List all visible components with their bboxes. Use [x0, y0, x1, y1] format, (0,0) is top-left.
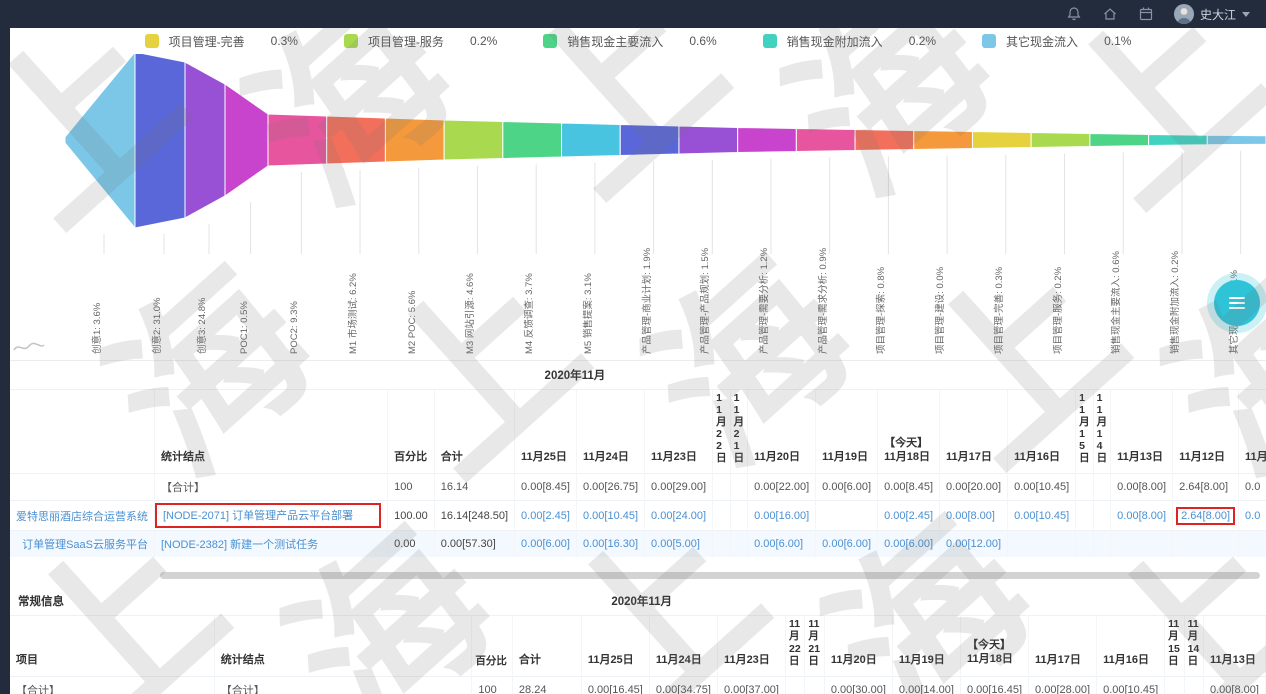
- avatar: [1174, 4, 1194, 24]
- date-col-header: 11月16日: [1097, 616, 1165, 676]
- menu-fab-button[interactable]: [1214, 280, 1260, 326]
- percent-col-header: 百分比: [472, 616, 513, 676]
- legend-label: 其它现金流入: [1006, 33, 1078, 50]
- table-row: 订单管理SaaS云服务平台[NODE-2382] 新建一个测试任务0.000.0…: [10, 531, 1266, 558]
- stage-label-18: 销售现金主要流入: 0.6%: [1111, 251, 1123, 354]
- node-cell: 【合计】: [214, 676, 472, 694]
- total-cell: 28.24: [512, 676, 581, 694]
- value-cell: 0.00[37.00]: [717, 676, 785, 694]
- funnel-stage-14: [855, 130, 914, 151]
- value-text: 0.00[28.00]: [1035, 684, 1090, 694]
- stage-label-0: 创意1: 3.6%: [92, 303, 104, 354]
- value-text: 0.00[37.00]: [724, 684, 779, 694]
- value-cell: [816, 501, 878, 531]
- wave-icon: [12, 340, 46, 354]
- value-text[interactable]: 0.00[6.00]: [754, 538, 803, 550]
- home-icon[interactable]: [1102, 6, 1118, 22]
- value-cell: 0.0: [1239, 474, 1266, 501]
- value-cell: [786, 676, 805, 694]
- date-col-header: 11月24日: [649, 616, 717, 676]
- value-cell: 0.00[20.00]: [940, 474, 1008, 501]
- funnel-stage-0: [65, 54, 135, 228]
- legend-item-0[interactable]: 项目管理-完善0.3%: [145, 33, 298, 50]
- value-cell: 0.00[6.00]: [816, 474, 878, 501]
- date-col-header: 11月17日: [940, 390, 1008, 474]
- value-text[interactable]: 0.00[2.45]: [884, 510, 933, 522]
- value-cell: 0.00[6.00]: [748, 531, 816, 558]
- project-cell: 订单管理SaaS云服务平台: [10, 531, 155, 558]
- funnel-stage-3: [225, 84, 268, 196]
- value-cell: 0.00[28.00]: [1029, 676, 1097, 694]
- value-text: 0.00[8.45]: [884, 481, 933, 493]
- value-text: 0.00[10.45]: [1103, 684, 1158, 694]
- value-text: 0.00[10.45]: [1014, 481, 1069, 493]
- percent-cell: 100: [388, 474, 435, 501]
- funnel-stage-15: [914, 131, 973, 150]
- stage-label-10: 产品管理-商业计划: 1.9%: [642, 248, 654, 354]
- stage-label-17: 项目管理-服务: 0.2%: [1053, 267, 1065, 354]
- value-cell: [713, 474, 731, 501]
- date-col-header: 11月20日: [824, 616, 892, 676]
- value-cell: [1111, 531, 1173, 558]
- legend-value: 0.2%: [909, 34, 936, 48]
- date-col-header: 11月16日: [1008, 390, 1076, 474]
- stage-label-2: 创意3: 24.8%: [197, 298, 209, 355]
- value-text[interactable]: 0.00[10.45]: [583, 510, 638, 522]
- stage-label-9: M5 销售提案: 3.1%: [583, 273, 595, 354]
- node-link[interactable]: [NODE-2071] 订单管理产品云平台部署: [163, 510, 353, 522]
- value-cell: [1076, 474, 1094, 501]
- date-col-header: 11月17日: [1029, 616, 1097, 676]
- tables-section: 2020年11月统计结点百分比合计11月25日11月24日11月23日11月22…: [10, 361, 1266, 694]
- main-content: 项目管理-完善0.3%项目管理-服务0.2%销售现金主要流入0.6%销售现金附加…: [10, 28, 1266, 694]
- table-row: 爱特思丽酒店综合运营系统[NODE-2071] 订单管理产品云平台部署100.0…: [10, 501, 1266, 531]
- value-cell: 0.00[26.75]: [576, 474, 644, 501]
- stage-label-15: 项目管理-建设: 0.0%: [935, 267, 947, 354]
- value-text[interactable]: 0.00[10.45]: [1014, 510, 1069, 522]
- date-col-header: 11月14日: [1184, 616, 1203, 676]
- funnel-stage-6: [385, 118, 444, 162]
- legend-item-3[interactable]: 销售现金附加流入0.2%: [763, 33, 936, 50]
- date-col-header: 11月13日: [1111, 390, 1173, 474]
- value-cell: 0.00[16.45]: [960, 676, 1028, 694]
- month-header: 2020年11月: [515, 361, 1266, 390]
- total-cell: 16.14[248.50]: [434, 501, 514, 531]
- value-text[interactable]: 0.00[8.00]: [1117, 510, 1166, 522]
- total-cell: 16.14: [434, 474, 514, 501]
- value-text: 0.00[8.00]: [1117, 481, 1166, 493]
- value-text[interactable]: 0.00[6.00]: [884, 538, 933, 550]
- legend-value: 0.6%: [689, 34, 716, 48]
- value-text: 0.0: [1245, 481, 1260, 493]
- value-text: 0.00[14.00]: [899, 684, 954, 694]
- date-col-header: 11月15日: [1076, 390, 1094, 474]
- funnel-stage-16: [972, 132, 1031, 149]
- value-cell: [1008, 531, 1076, 558]
- top-navbar: 史大江: [0, 0, 1266, 28]
- value-cell: [1076, 531, 1094, 558]
- legend-label: 项目管理-完善: [169, 33, 245, 50]
- funnel-stage-4: [268, 114, 327, 166]
- value-cell: 2.64[8.00]: [1173, 474, 1239, 501]
- value-cell: [713, 501, 731, 531]
- legend-item-1[interactable]: 项目管理-服务0.2%: [344, 33, 497, 50]
- funnel-stage-20: [1207, 135, 1266, 145]
- highlight-box: [NODE-2071] 订单管理产品云平台部署: [155, 503, 381, 528]
- legend-swatch: [543, 34, 557, 48]
- value-cell: 2.64[8.00]: [1173, 501, 1239, 531]
- stage-label-3: POC1: 0.5%: [239, 301, 251, 354]
- value-cell: 0.00[16.30]: [576, 531, 644, 558]
- legend-label: 销售现金附加流入: [787, 33, 883, 50]
- funnel-stage-12: [738, 128, 797, 153]
- percent-cell: 100.00: [388, 501, 435, 531]
- value-cell: 0.00[8.45]: [515, 474, 577, 501]
- value-text[interactable]: 0.00[8.00]: [946, 510, 995, 522]
- value-cell: 0.00[16.45]: [581, 676, 649, 694]
- node-cell: [NODE-2071] 订单管理产品云平台部署: [155, 501, 388, 531]
- stage-label-5: M1 市场测试: 6.2%: [348, 273, 360, 354]
- value-text: 0.00[20.00]: [946, 481, 1001, 493]
- value-text: 0.00[6.00]: [822, 481, 871, 493]
- value-text: 0.00[29.00]: [651, 481, 706, 493]
- value-cell: [1093, 474, 1111, 501]
- value-text: 0.00[26.75]: [583, 481, 638, 493]
- date-col-header: 11月23日: [645, 390, 713, 474]
- value-cell: [1173, 531, 1239, 558]
- date-col-header: 11月21日: [805, 616, 824, 676]
- value-cell: 0.00[6.00]: [816, 531, 878, 558]
- legend-item-2[interactable]: 销售现金主要流入0.6%: [543, 33, 716, 50]
- funnel-stage-9: [562, 123, 621, 157]
- legend-swatch: [982, 34, 996, 48]
- horizontal-scrollbar[interactable]: [160, 572, 1260, 579]
- date-col-header: 11月19日: [892, 616, 960, 676]
- date-col-header: 11月22日: [786, 616, 805, 676]
- value-cell: 0.00[12.00]: [940, 531, 1008, 558]
- funnel-chart: 创意1: 3.6%创意2: 31.0%创意3: 24.8%POC1: 0.5%P…: [10, 54, 1266, 361]
- date-col-header: 11月22日: [713, 390, 731, 474]
- date-col-header: 【今天】11月18日: [960, 616, 1028, 676]
- stage-label-6: M2 POC: 5.6%: [407, 291, 419, 354]
- username-label: 史大江: [1200, 6, 1236, 23]
- total-col-header: 合计: [512, 616, 581, 676]
- value-cell: [730, 474, 748, 501]
- date-col-header: 11月15日: [1165, 616, 1184, 676]
- value-cell: 0.00[6.00]: [878, 531, 940, 558]
- date-col-header: 11月23日: [717, 616, 785, 676]
- project-cell: 爱特思丽酒店综合运营系统: [10, 501, 155, 531]
- value-cell: 0.00[16.00]: [748, 501, 816, 531]
- funnel-stage-2: [185, 62, 225, 218]
- date-col-header: 11月11日: [1239, 390, 1266, 474]
- date-col-header: 11月19日: [816, 390, 878, 474]
- node-label: 【合计】: [221, 685, 265, 694]
- funnel-stage-11: [679, 126, 738, 154]
- legend-value: 0.1%: [1104, 34, 1131, 48]
- date-col-header: 11月12日: [1173, 390, 1239, 474]
- node-cell: [NODE-2382] 新建一个测试任务: [155, 531, 388, 558]
- value-cell: 0.0: [1239, 501, 1266, 531]
- percent-cell: 100: [472, 676, 513, 694]
- funnel-stage-5: [327, 116, 386, 164]
- project-col-header: 项目: [10, 616, 214, 676]
- stage-label-11: 产品管理-产品规划: 1.5%: [700, 248, 712, 354]
- value-cell: 0.00[8.45]: [878, 474, 940, 501]
- value-text[interactable]: 0.00[16.30]: [583, 538, 638, 550]
- user-menu[interactable]: 史大江: [1174, 4, 1250, 24]
- bell-icon[interactable]: [1066, 6, 1082, 22]
- value-cell: [730, 531, 748, 558]
- stage-label-4: POC2: 9.3%: [289, 301, 301, 354]
- value-cell: [1093, 501, 1111, 531]
- funnel-stage-19: [1149, 135, 1208, 146]
- regular-info-table: 常规信息2020年11月项目统计结点百分比合计11月25日11月24日11月23…: [10, 587, 1266, 694]
- value-cell: 0.00[8.00]: [1111, 474, 1173, 501]
- value-cell: 0.00[14.00]: [892, 676, 960, 694]
- value-text[interactable]: 0.00[24.00]: [651, 510, 706, 522]
- value-text[interactable]: 0.00[6.00]: [822, 538, 871, 550]
- date-col-header: 11月21日: [730, 390, 748, 474]
- value-cell: 0.00[8.00]: [940, 501, 1008, 531]
- stage-label-8: M4 反馈调查: 3.7%: [524, 273, 536, 354]
- total-cell: 0.00[57.30]: [434, 531, 514, 558]
- value-cell: [1184, 676, 1203, 694]
- value-cell: 0.00[8.00]: [1204, 676, 1266, 694]
- stage-label-13: 产品管理-需求分析: 0.9%: [818, 248, 830, 354]
- stage-label-7: M3 网站引源: 4.6%: [465, 273, 477, 354]
- table-row: 【合计】【合计】10028.240.00[16.45]0.00[34.75]0.…: [10, 676, 1266, 694]
- app-window: 史大江 项目管理-完善0.3%项目管理-服务0.2%销售现金主要流入0.6%销售…: [0, 0, 1266, 694]
- stage-label-1: 创意2: 31.0%: [152, 298, 164, 355]
- funnel-stage-13: [796, 129, 855, 152]
- stage-label-16: 项目管理-完善: 0.3%: [994, 267, 1006, 354]
- value-text: 0.00[8.00]: [1210, 684, 1259, 694]
- node-label: 【合计】: [161, 482, 205, 494]
- value-cell: 0.00[2.45]: [878, 501, 940, 531]
- node-col-header: 统计结点: [155, 390, 388, 474]
- chart-legend: 项目管理-完善0.3%项目管理-服务0.2%销售现金主要流入0.6%销售现金附加…: [10, 28, 1266, 54]
- value-cell: [1093, 531, 1111, 558]
- value-cell: [1076, 501, 1094, 531]
- value-cell: 0.00[10.45]: [1008, 501, 1076, 531]
- value-cell: 0.00[29.00]: [645, 474, 713, 501]
- stage-label-14: 项目管理-探索: 0.8%: [876, 267, 888, 354]
- value-text[interactable]: 0.00[5.00]: [651, 538, 700, 550]
- value-cell: 0.00[10.45]: [576, 501, 644, 531]
- month-row-spacer: [10, 361, 515, 390]
- legend-swatch: [344, 34, 358, 48]
- value-text[interactable]: 0.00[12.00]: [946, 538, 1001, 550]
- value-text: 0.00[16.45]: [967, 684, 1022, 694]
- value-cell: [713, 531, 731, 558]
- value-cell: 0.00[10.45]: [1097, 676, 1165, 694]
- date-col-header: 11月20日: [748, 390, 816, 474]
- value-cell: [1165, 676, 1184, 694]
- value-cell: 0.00[5.00]: [645, 531, 713, 558]
- value-text: 0.00[30.00]: [831, 684, 886, 694]
- date-col-header: 11月24日: [576, 390, 644, 474]
- value-text: 0.00[16.45]: [588, 684, 643, 694]
- legend-swatch: [145, 34, 159, 48]
- value-cell: [1239, 531, 1266, 558]
- date-col-header: 【今天】11月18日: [878, 390, 940, 474]
- value-text: 0.00[8.45]: [521, 481, 570, 493]
- project-link[interactable]: 订单管理SaaS云服务平台: [22, 539, 148, 551]
- percent-cell: 0.00: [388, 531, 435, 558]
- funnel-stage-1: [135, 54, 185, 228]
- funnel-stage-10: [620, 125, 679, 156]
- table-row: 【合计】10016.140.00[8.45]0.00[26.75]0.00[29…: [10, 474, 1266, 501]
- node-col-header: 统计结点: [214, 616, 472, 676]
- funnel-stage-18: [1090, 134, 1149, 147]
- value-cell: 0.00[2.45]: [515, 501, 577, 531]
- total-col-header: 合计: [434, 390, 514, 474]
- legend-value: 0.3%: [271, 34, 298, 48]
- value-cell: [730, 501, 748, 531]
- stage-label-12: 产品管理-需要分析: 1.2%: [759, 248, 771, 354]
- value-text[interactable]: 0.0: [1245, 510, 1260, 522]
- value-text[interactable]: 0.00[6.00]: [521, 538, 570, 550]
- project-col-header: [10, 390, 155, 474]
- legend-value: 0.2%: [470, 34, 497, 48]
- value-text[interactable]: 0.00[2.45]: [521, 510, 570, 522]
- value-text: 0.00[34.75]: [656, 684, 711, 694]
- value-text[interactable]: 0.00[16.00]: [754, 510, 809, 522]
- funnel-stage-8: [503, 122, 562, 159]
- section-title: 常规信息: [10, 587, 581, 616]
- value-cell: 0.00[10.45]: [1008, 474, 1076, 501]
- value-cell: [805, 676, 824, 694]
- legend-label: 销售现金主要流入: [567, 33, 663, 50]
- project-link[interactable]: 爱特思丽酒店综合运营系统: [16, 511, 148, 523]
- stage-label-19: 销售现金附加流入: 0.2%: [1170, 251, 1182, 354]
- date-col-header: 11月25日: [581, 616, 649, 676]
- value-cell: 0.00[22.00]: [748, 474, 816, 501]
- funnel-stage-17: [1031, 133, 1090, 148]
- percent-col-header: 百分比: [388, 390, 435, 474]
- funnel-stage-7: [444, 120, 503, 160]
- project-cell: [10, 474, 155, 501]
- legend-label: 项目管理-服务: [368, 33, 444, 50]
- node-cell: 【合计】: [155, 474, 388, 501]
- node-link[interactable]: [NODE-2382] 新建一个测试任务: [161, 539, 318, 551]
- value-text: 2.64[8.00]: [1179, 481, 1228, 493]
- legend-swatch: [763, 34, 777, 48]
- date-col-header: 11月13日: [1204, 616, 1266, 676]
- highlighted-value[interactable]: 2.64[8.00]: [1179, 510, 1232, 522]
- value-cell: 0.00[34.75]: [649, 676, 717, 694]
- value-cell: 0.00[6.00]: [515, 531, 577, 558]
- statistics-table: 2020年11月统计结点百分比合计11月25日11月24日11月23日11月22…: [10, 361, 1266, 557]
- value-cell: 0.00[24.00]: [645, 501, 713, 531]
- legend-item-4[interactable]: 其它现金流入0.1%: [982, 33, 1131, 50]
- value-cell: 0.00[30.00]: [824, 676, 892, 694]
- project-cell: 【合计】: [10, 676, 214, 694]
- date-col-header: 11月14日: [1093, 390, 1111, 474]
- chevron-down-icon: [1242, 12, 1250, 17]
- value-cell: 0.00[8.00]: [1111, 501, 1173, 531]
- calendar-icon[interactable]: [1138, 6, 1154, 22]
- month-header: 2020年11月: [581, 587, 1265, 616]
- collapsed-sidebar[interactable]: [0, 0, 10, 694]
- date-col-header: 11月25日: [515, 390, 577, 474]
- project-label: 【合计】: [16, 685, 60, 694]
- value-text: 0.00[22.00]: [754, 481, 809, 493]
